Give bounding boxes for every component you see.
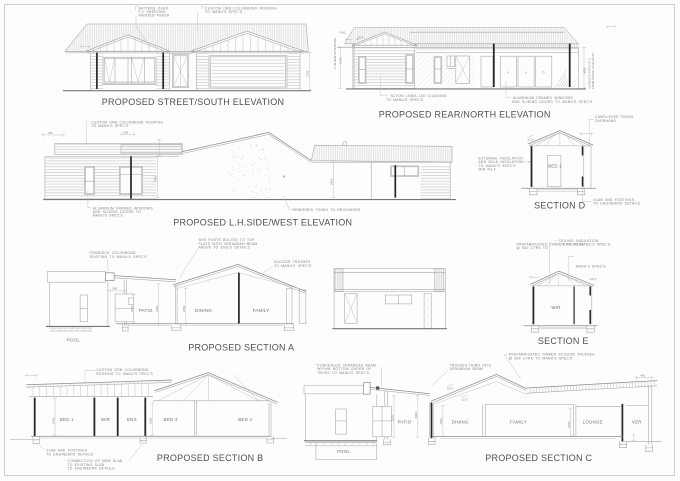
svg-text:MIN R2.4: MIN R2.4 (479, 168, 496, 172)
svg-text:D: D (543, 71, 545, 75)
svg-text:BED 1: BED 1 (60, 417, 74, 422)
svg-text:WIR: WIR (101, 417, 110, 422)
svg-text:MANU'S SPEC'S: MANU'S SPEC'S (93, 213, 124, 217)
svg-text:600: 600 (124, 130, 129, 134)
svg-text:ROOFING TO MANU'S SPEC'S: ROOFING TO MANU'S SPEC'S (96, 372, 153, 376)
svg-text:PATIO: PATIO (398, 420, 412, 425)
svg-text:ABOVE TO ENG'S DETAILS: ABOVE TO ENG'S DETAILS (199, 246, 251, 250)
svg-text:BED 2: BED 2 (238, 417, 252, 422)
svg-text:FROM HOUSE SLAB LEVEL: FROM HOUSE SLAB LEVEL (591, 52, 595, 89)
svg-text:3000: 3000 (582, 67, 586, 74)
svg-text:450: 450 (48, 131, 53, 135)
svg-text:PAINTED FINISH: PAINTED FINISH (139, 14, 170, 18)
svg-text:POOL: POOL (337, 449, 351, 454)
svg-text:PROPOSED STREET/SOUTH ELEVATIO: PROPOSED STREET/SOUTH ELEVATION (102, 97, 284, 107)
svg-text:TO MANU'S SPEC'S: TO MANU'S SPEC'S (274, 264, 312, 268)
svg-text:MANU'S SPEC'S: MANU'S SPEC'S (576, 264, 607, 268)
svg-text:900: 900 (113, 287, 118, 291)
svg-text:2100: 2100 (130, 305, 134, 312)
svg-text:2400: 2400 (154, 175, 158, 182)
svg-text:PROPOSED SECTION B: PROPOSED SECTION B (157, 453, 264, 463)
svg-text:SECTION D: SECTION D (534, 201, 586, 211)
svg-text:PATIO: PATIO (139, 308, 153, 313)
svg-text:BED 4: BED 4 (164, 417, 178, 422)
svg-text:2700: 2700 (339, 57, 343, 64)
svg-text:22.5°: 22.5° (528, 137, 535, 141)
svg-text:PROPOSED SECTION A: PROPOSED SECTION A (188, 342, 294, 352)
svg-text:2400: 2400 (182, 305, 186, 312)
svg-text:@ 600 CTRS TO: @ 600 CTRS TO (517, 246, 549, 250)
svg-text:PROPOSED REAR/NORTH ELEVATION: PROPOSED REAR/NORTH ELEVATION (379, 109, 551, 119)
svg-text:TO MANU'S SPEC'S: TO MANU'S SPEC'S (205, 10, 243, 14)
svg-text:450: 450 (641, 374, 646, 378)
svg-text:22.5°: 22.5° (590, 277, 597, 281)
svg-text:TO ENGINEERS DETAILS: TO ENGINEERS DETAILS (46, 452, 94, 456)
svg-text:LOUNGE: LOUNGE (583, 420, 603, 425)
svg-text:PROPOSED L.H.SIDE/WEST ELEVATI: PROPOSED L.H.SIDE/WEST ELEVATION (173, 218, 352, 228)
svg-text:2400: 2400 (567, 421, 571, 428)
svg-text:TO MANU'S SPEC'S: TO MANU'S SPEC'S (91, 124, 129, 128)
svg-text:2.7M NEW EXTENSION: 2.7M NEW EXTENSION (333, 38, 337, 69)
svg-text:TRUSS TO MANU'S SPEC'S: TRUSS TO MANU'S SPEC'S (317, 371, 370, 375)
svg-text:12.5°: 12.5° (462, 397, 469, 401)
svg-text:2100: 2100 (390, 415, 394, 422)
svg-text:ALFRESCO PITCH AT 5: ALFRESCO PITCH AT 5 (588, 58, 592, 89)
svg-text:RENDERED FINISH TO BRICKWORK: RENDERED FINISH TO BRICKWORK (293, 208, 362, 212)
svg-text:BED 1: BED 1 (548, 164, 562, 169)
svg-text:VERANDAH BEAM: VERANDAH BEAM (450, 367, 483, 371)
svg-text:OVERHANG: OVERHANG (595, 119, 616, 123)
svg-text:FAMILY: FAMILY (253, 308, 270, 313)
svg-text:VER: VER (632, 420, 642, 425)
svg-text:V: V (525, 71, 527, 75)
svg-text:TO ENGINEERS DETAILS: TO ENGINEERS DETAILS (593, 202, 641, 206)
svg-text:ROOFING TO MANU'S SPEC'S: ROOFING TO MANU'S SPEC'S (90, 255, 147, 259)
svg-text:2400: 2400 (155, 305, 159, 312)
svg-text:DINING: DINING (195, 308, 212, 313)
svg-text:2400: 2400 (330, 178, 334, 185)
svg-text:V: V (507, 71, 509, 75)
svg-text:22.5°: 22.5° (447, 387, 454, 391)
svg-text:TO MANU'S SPEC'S: TO MANU'S SPEC'S (386, 98, 424, 102)
svg-text:WIR: WIR (551, 305, 560, 310)
svg-text:FALL: FALL (340, 31, 347, 35)
svg-text:DINING: DINING (452, 420, 469, 425)
svg-text:POOL: POOL (67, 338, 81, 343)
svg-text:PROPOSED SECTION C: PROPOSED SECTION C (485, 453, 592, 463)
svg-text:2700: 2700 (51, 417, 55, 424)
svg-text:FAMILY: FAMILY (510, 420, 527, 425)
svg-text:TO ENGINEERS DETAILS: TO ENGINEERS DETAILS (68, 467, 116, 471)
svg-text:AND SLIDING DOORS TO MANU'S SP: AND SLIDING DOORS TO MANU'S SPEC'S (512, 100, 593, 104)
svg-text:@ 600 CTRS TO MANU'S SPEC'S: @ 600 CTRS TO MANU'S SPEC'S (509, 357, 573, 361)
svg-text:ENS: ENS (127, 417, 137, 422)
svg-text:2400: 2400 (439, 418, 443, 425)
svg-text:2700: 2700 (306, 70, 310, 77)
svg-text:SECTION E: SECTION E (538, 336, 589, 346)
svg-text:2400: 2400 (149, 417, 153, 424)
svg-text:3000: 3000 (414, 412, 418, 419)
